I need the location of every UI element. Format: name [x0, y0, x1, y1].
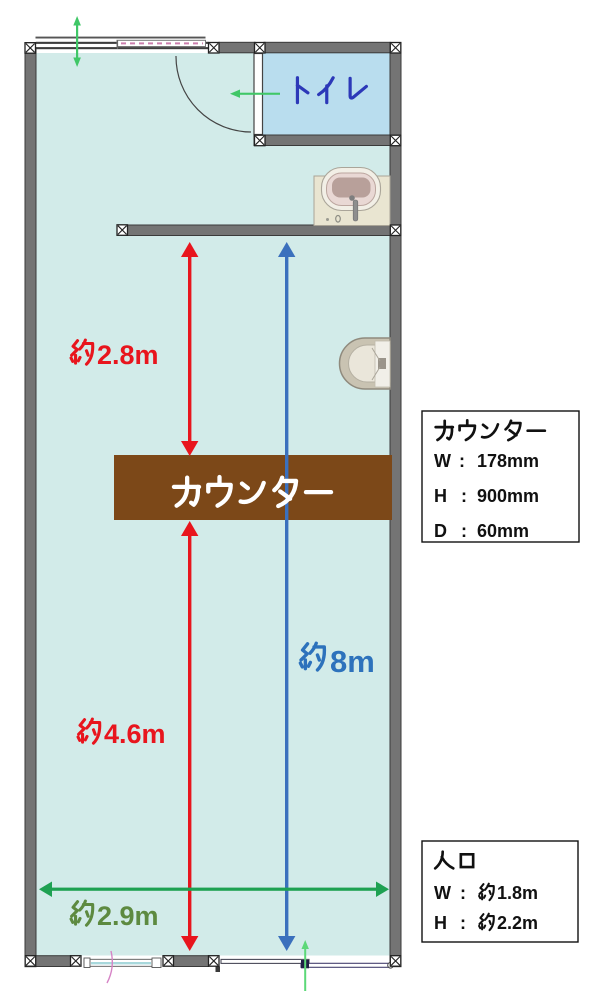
svg-text:2.9m: 2.9m — [97, 901, 159, 931]
svg-text:1.8m: 1.8m — [497, 883, 538, 903]
svg-text:W:: W: — [434, 883, 466, 903]
svg-text:W:178mm: W:178mm — [434, 451, 539, 471]
svg-text:2.2m: 2.2m — [497, 913, 538, 933]
svg-text:8m: 8m — [330, 644, 375, 679]
svg-text:2.8m: 2.8m — [97, 340, 159, 370]
svg-text:4.6m: 4.6m — [104, 719, 166, 749]
